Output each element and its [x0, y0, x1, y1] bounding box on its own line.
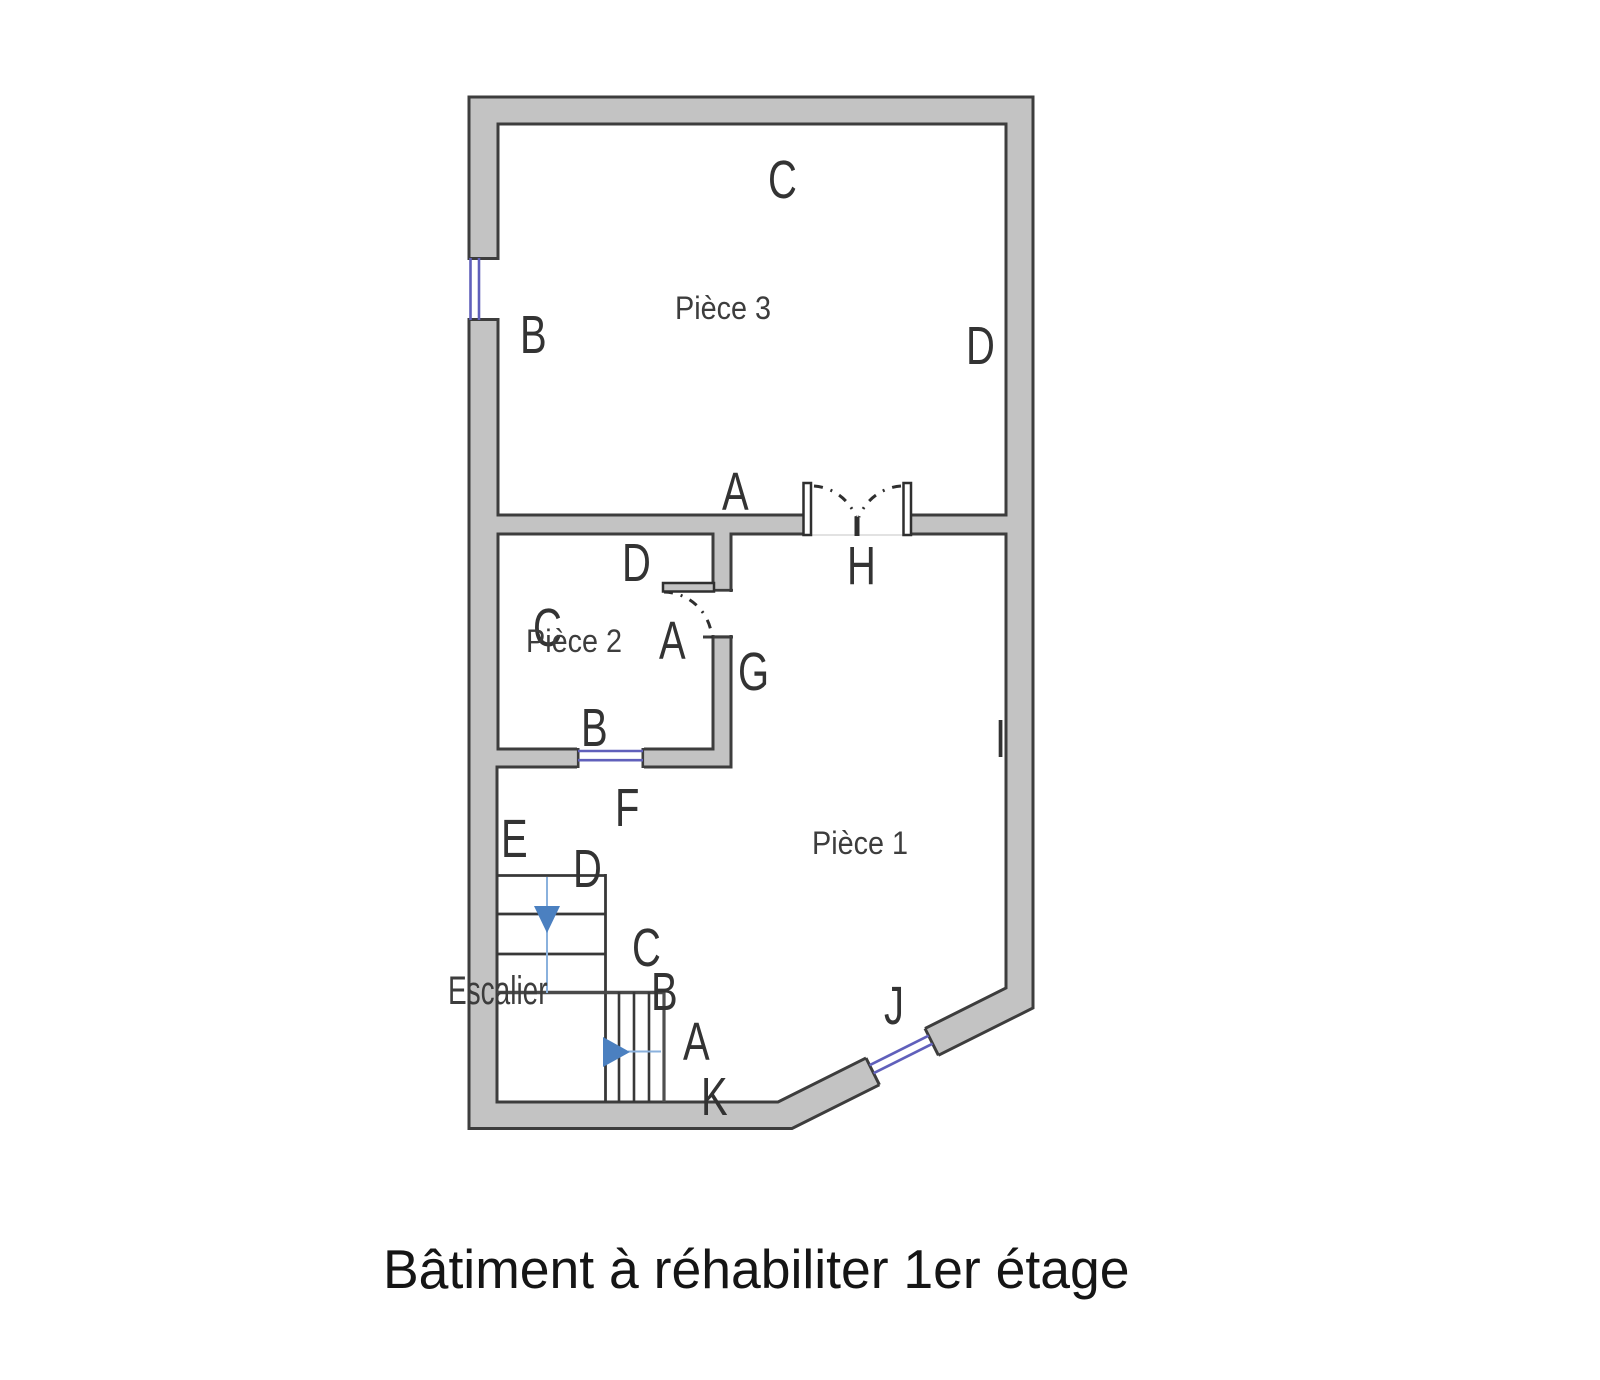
svg-text:J: J [884, 976, 904, 1036]
svg-text:K: K [701, 1067, 728, 1127]
svg-text:D: D [966, 316, 995, 376]
svg-text:Bâtiment à réhabiliter 1er éta: Bâtiment à réhabiliter 1er étage [383, 1239, 1130, 1300]
svg-text:D: D [573, 839, 602, 899]
svg-text:A: A [659, 611, 686, 671]
svg-text:C: C [768, 150, 797, 210]
svg-text:A: A [683, 1012, 710, 1072]
svg-text:H: H [847, 536, 876, 596]
svg-text:I: I [995, 709, 1006, 769]
svg-text:A: A [722, 462, 749, 522]
svg-text:D: D [622, 533, 651, 593]
svg-text:Escalier: Escalier [448, 969, 548, 1013]
svg-text:G: G [738, 642, 769, 702]
svg-text:E: E [501, 809, 528, 869]
svg-text:Pièce 1: Pièce 1 [812, 826, 908, 862]
svg-text:B: B [581, 698, 608, 758]
svg-text:Pièce 3: Pièce 3 [675, 291, 771, 327]
svg-text:F: F [615, 778, 639, 838]
svg-text:Pièce 2: Pièce 2 [526, 624, 622, 660]
svg-text:B: B [520, 305, 547, 365]
svg-text:B: B [651, 962, 678, 1022]
